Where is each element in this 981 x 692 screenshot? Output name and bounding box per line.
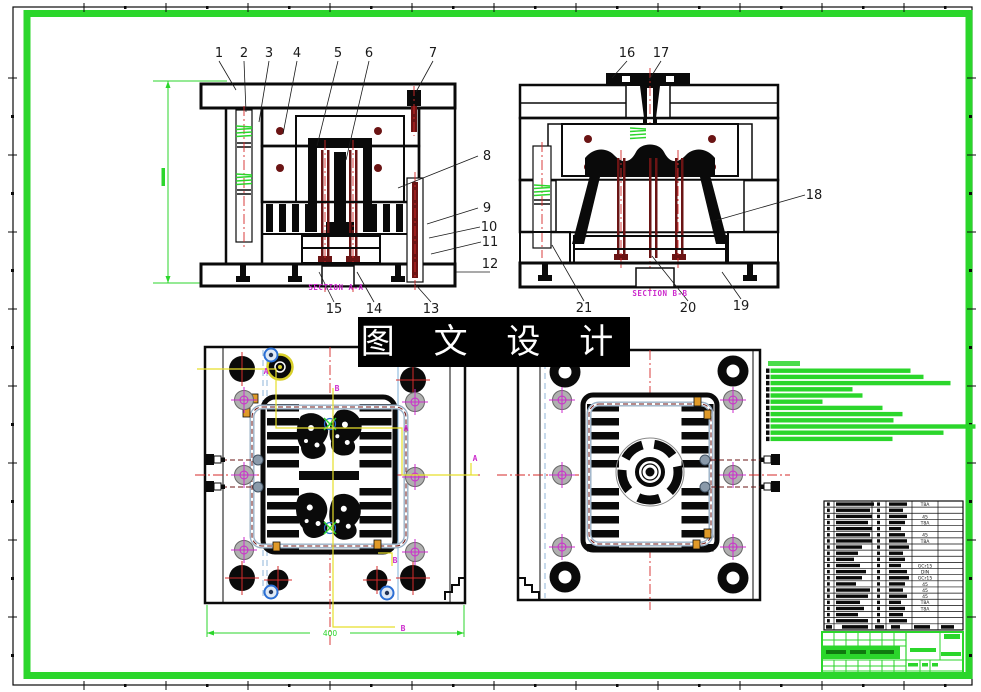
callout-leader-3 bbox=[259, 61, 269, 122]
bom-row-7-item bbox=[827, 539, 830, 542]
bom-row-17-name bbox=[836, 601, 860, 604]
callout-number-2: 2 bbox=[240, 46, 248, 61]
stepped-corner bbox=[518, 578, 539, 600]
ejector-retainer-plate bbox=[302, 236, 380, 248]
water-plug-icon bbox=[205, 454, 225, 465]
bom-row-17-item bbox=[827, 601, 830, 604]
note-line bbox=[771, 424, 976, 428]
water-plug-icon bbox=[205, 481, 225, 492]
note-bullet bbox=[766, 393, 770, 397]
logo-mark bbox=[944, 634, 960, 639]
callout-number-4: 4 bbox=[293, 46, 301, 61]
bom-row-15-material bbox=[889, 588, 903, 591]
bom-row-17-material bbox=[889, 601, 901, 604]
note-bullet bbox=[766, 424, 770, 428]
section-b-label: SECTION B-B bbox=[632, 289, 687, 298]
section-letter-b-3: B bbox=[335, 384, 340, 393]
dowel-hole bbox=[265, 349, 278, 362]
bom-row-18-name bbox=[836, 607, 864, 610]
bom-row-19-item bbox=[827, 613, 830, 616]
bom-row-17-note: T8A bbox=[920, 600, 931, 606]
bom-row-1-note: T8A bbox=[920, 502, 931, 508]
ejector-pins bbox=[614, 150, 686, 268]
bom-row-5-material bbox=[889, 527, 901, 530]
bom-row-12-material bbox=[889, 570, 907, 573]
note-line bbox=[771, 418, 894, 422]
note-line bbox=[771, 387, 853, 391]
bom-row-20-material bbox=[889, 619, 907, 622]
note-line bbox=[771, 375, 924, 379]
bom-row-20-item bbox=[827, 619, 830, 622]
bom-row-13-item bbox=[827, 576, 830, 579]
bom-row-14-name bbox=[836, 582, 856, 585]
bom-row-13-material bbox=[889, 576, 909, 579]
notes-title bbox=[768, 361, 800, 366]
callout-number-5: 5 bbox=[334, 46, 342, 61]
callout-leader-21 bbox=[552, 245, 584, 301]
callout-leader-4 bbox=[283, 61, 297, 134]
guide-bush-hole bbox=[718, 356, 749, 387]
callout-number-15: 15 bbox=[326, 302, 343, 317]
bom-row-20-name bbox=[836, 619, 868, 622]
bolt-hole bbox=[225, 561, 259, 595]
note-line bbox=[771, 369, 911, 373]
bom-row-18-material bbox=[889, 607, 905, 610]
bom-row-4-item bbox=[827, 521, 830, 524]
section-letter-b-4: B bbox=[393, 556, 398, 565]
note-bullet bbox=[766, 369, 770, 373]
bom-row-11-material bbox=[889, 564, 901, 567]
callout-leader-7 bbox=[416, 61, 433, 92]
water-plug-icon bbox=[760, 481, 780, 492]
bom-row-11-name bbox=[836, 564, 860, 567]
bom-row-4-name bbox=[836, 521, 868, 524]
callout-leader-9 bbox=[427, 208, 478, 224]
engineering-drawing-sheet: 400 bbox=[0, 0, 981, 692]
bom-row-2-material bbox=[889, 509, 903, 512]
bom-row-2-name bbox=[836, 509, 870, 512]
bom-table: T8A45T8A45T8AGCr15DINGCr15454545T8AT8A bbox=[824, 501, 963, 630]
bom-row-3-material bbox=[889, 515, 907, 518]
bom-row-12-note: DIN bbox=[921, 570, 929, 576]
bom-row-7-name bbox=[836, 539, 872, 542]
bom-row-19-material bbox=[889, 613, 903, 616]
bom-row-9-material bbox=[889, 552, 903, 555]
callout-number-11: 11 bbox=[482, 235, 499, 250]
bom-row-2-item bbox=[827, 509, 830, 512]
bom-row-7-material bbox=[889, 539, 907, 542]
note-bullet bbox=[766, 431, 770, 435]
cad-drawing-canvas: 400 bbox=[0, 0, 981, 692]
bom-header-bar bbox=[941, 625, 954, 629]
bom-row-10-name bbox=[836, 558, 854, 561]
dimension-value: 400 bbox=[323, 629, 338, 638]
bom-row-1-material bbox=[889, 502, 907, 505]
screw-hole bbox=[549, 534, 575, 560]
bom-header-bar bbox=[875, 625, 884, 629]
bom-row-8-material bbox=[889, 545, 909, 548]
bom-row-8-item bbox=[827, 545, 830, 548]
drawing-number-text bbox=[941, 652, 961, 656]
vertical-dimension bbox=[153, 81, 227, 283]
note-line bbox=[771, 437, 893, 441]
section-letter-a-1: A bbox=[404, 424, 409, 433]
bom-row-3-item bbox=[827, 515, 830, 518]
section-letter-b-5: B bbox=[401, 624, 406, 633]
callout-number-19: 19 bbox=[733, 299, 750, 314]
callout-number-8: 8 bbox=[483, 149, 491, 164]
note-bullet bbox=[766, 412, 770, 416]
bom-header-bar bbox=[891, 625, 900, 629]
spacer-rail-left bbox=[262, 234, 302, 264]
bom-row-4-note: T8A bbox=[920, 520, 931, 526]
callout-number-18: 18 bbox=[806, 188, 823, 203]
screw-hole bbox=[720, 462, 746, 488]
bom-row-19-name bbox=[836, 613, 858, 616]
callout-leader-1 bbox=[219, 61, 236, 90]
bom-header-bar bbox=[914, 625, 930, 629]
bom-row-6-material bbox=[889, 533, 905, 536]
callout-number-1: 1 bbox=[215, 46, 223, 61]
bom-row-18-note: T8A bbox=[920, 606, 931, 612]
note-line bbox=[771, 431, 944, 435]
bom-row-13-name bbox=[836, 576, 862, 579]
guide-bush-hole bbox=[718, 563, 749, 594]
bom-row-3-note: 45 bbox=[922, 514, 928, 520]
bom-row-5-name bbox=[836, 527, 872, 530]
bom-row-16-note: 45 bbox=[922, 594, 928, 600]
bom-row-6-name bbox=[836, 533, 870, 536]
callout-number-10: 10 bbox=[481, 220, 498, 235]
water-plug-icon bbox=[760, 454, 780, 465]
bom-row-12-name bbox=[836, 570, 866, 573]
callout-number-16: 16 bbox=[619, 46, 636, 61]
bom-row-8-name bbox=[836, 545, 862, 548]
bom-row-11-note: GCr15 bbox=[918, 563, 933, 569]
guide-pin bbox=[236, 106, 252, 250]
note-bullet bbox=[766, 400, 770, 404]
bom-row-14-item bbox=[827, 582, 830, 585]
guide-pin bbox=[533, 142, 551, 258]
section-letter-a-2: A bbox=[473, 454, 478, 463]
note-bullet bbox=[766, 437, 770, 441]
bom-row-3-name bbox=[836, 515, 872, 518]
bom-row-13-note: GCr15 bbox=[918, 576, 933, 582]
callout-number-21: 21 bbox=[576, 301, 593, 316]
bom-row-5-item bbox=[827, 527, 830, 530]
title-block bbox=[822, 632, 963, 676]
callout-number-7: 7 bbox=[429, 46, 437, 61]
guide-bush-hole bbox=[550, 562, 581, 593]
callout-number-12: 12 bbox=[482, 257, 499, 272]
bom-row-15-item bbox=[827, 588, 830, 591]
callout-number-20: 20 bbox=[680, 301, 697, 316]
bolt-hole bbox=[396, 561, 430, 595]
mold-core bbox=[308, 138, 372, 234]
callout-number-17: 17 bbox=[653, 46, 670, 61]
dowel-hole bbox=[381, 587, 394, 600]
bom-row-9-item bbox=[827, 552, 830, 555]
bom-row-16-item bbox=[827, 595, 830, 598]
watermark-text: 图 文 设 计 bbox=[361, 322, 627, 362]
bom-row-6-note: 45 bbox=[922, 533, 928, 539]
plan-view-fixed-half bbox=[497, 350, 790, 610]
note-bullet bbox=[766, 418, 770, 422]
callout-number-14: 14 bbox=[366, 302, 383, 317]
return-pin bbox=[407, 172, 423, 290]
bom-row-4-material bbox=[889, 521, 905, 524]
callout-leader-8 bbox=[398, 156, 478, 188]
bom-row-11-item bbox=[827, 564, 830, 567]
bom-row-14-note: 45 bbox=[922, 582, 928, 588]
screw-hole bbox=[720, 387, 746, 413]
bom-row-16-material bbox=[889, 595, 907, 598]
note-line bbox=[771, 381, 951, 385]
note-line bbox=[771, 412, 903, 416]
note-line bbox=[771, 400, 823, 404]
section-view-a bbox=[153, 81, 455, 292]
note-bullet bbox=[766, 375, 770, 379]
note-bullet bbox=[766, 406, 770, 410]
callout-leader-5 bbox=[317, 61, 338, 146]
bom-row-16-name bbox=[836, 595, 868, 598]
bom-row-6-item bbox=[827, 533, 830, 536]
bom-row-10-item bbox=[827, 558, 830, 561]
bom-row-7-note: T8A bbox=[920, 539, 931, 545]
callout-leader-2 bbox=[244, 61, 246, 112]
note-bullet bbox=[766, 387, 770, 391]
bom-header-bar bbox=[826, 625, 832, 629]
bom-row-1-item bbox=[827, 502, 830, 505]
bom-row-15-note: 45 bbox=[922, 588, 928, 594]
screw-hole bbox=[549, 387, 575, 413]
bom-row-1-name bbox=[836, 502, 874, 505]
section-a-label: SECTION A-A bbox=[308, 283, 363, 292]
bom-row-10-material bbox=[889, 558, 905, 561]
bom-row-12-item bbox=[827, 570, 830, 573]
callout-number-13: 13 bbox=[423, 302, 440, 317]
bom-row-15-name bbox=[836, 588, 870, 591]
section-letter-a-0: A bbox=[264, 367, 269, 376]
stepped-corner bbox=[445, 578, 465, 600]
right-leg bbox=[419, 108, 455, 264]
screw-hole bbox=[720, 534, 746, 560]
dowel-hole bbox=[265, 586, 278, 599]
screw-hole bbox=[549, 462, 575, 488]
callout-number-3: 3 bbox=[265, 46, 273, 61]
note-line bbox=[771, 393, 863, 397]
part-name-text bbox=[910, 648, 936, 652]
clamp-bolts bbox=[236, 264, 405, 282]
callout-number-6: 6 bbox=[365, 46, 373, 61]
note-line bbox=[771, 406, 883, 410]
bom-header-bar bbox=[842, 625, 868, 629]
tech-notes-block bbox=[766, 361, 976, 441]
bom-row-14-material bbox=[889, 582, 905, 585]
bolt-hole bbox=[396, 363, 430, 397]
bom-row-9-name bbox=[836, 552, 858, 555]
callout-number-9: 9 bbox=[483, 201, 491, 216]
spacer-rail-right bbox=[728, 232, 778, 263]
bom-row-18-item bbox=[827, 607, 830, 610]
note-bullet bbox=[766, 381, 770, 385]
watermark-banner: 图 文 设 计 bbox=[358, 317, 630, 367]
ejector-plate bbox=[302, 248, 380, 263]
